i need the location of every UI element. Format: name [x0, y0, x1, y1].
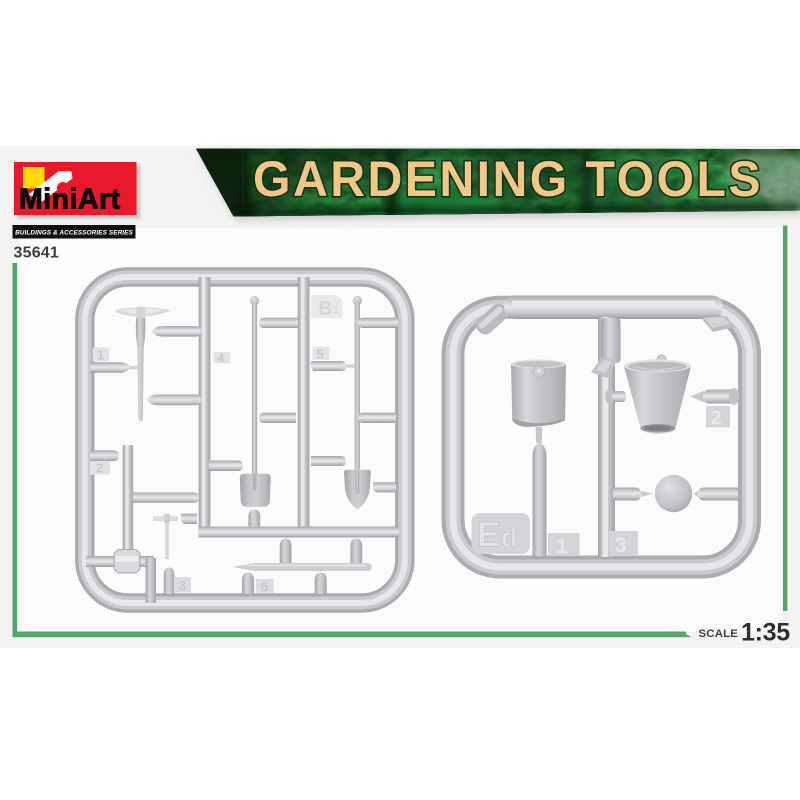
svg-text:1: 1 — [556, 535, 568, 558]
svg-text:BUILDINGS & ACCESSORIES SERIES: BUILDINGS & ACCESSORIES SERIES — [15, 230, 133, 237]
svg-text:d: d — [501, 523, 518, 553]
svg-text:4: 4 — [218, 351, 225, 365]
svg-text:3: 3 — [615, 534, 627, 557]
svg-text:5: 5 — [317, 346, 324, 361]
svg-text:E: E — [477, 516, 500, 555]
svg-text:B: B — [319, 299, 333, 320]
svg-text:SCALE: SCALE — [699, 628, 739, 640]
svg-text:1:35: 1:35 — [741, 619, 790, 647]
svg-text:2: 2 — [711, 408, 722, 429]
svg-text:1: 1 — [333, 304, 339, 316]
svg-text:GARDENING TOOLS: GARDENING TOOLS — [253, 151, 763, 207]
svg-text:2: 2 — [96, 461, 103, 476]
svg-text:MiniArt: MiniArt — [19, 184, 121, 216]
svg-text:6: 6 — [261, 580, 269, 595]
svg-text:1: 1 — [97, 348, 104, 363]
svg-text:35641: 35641 — [14, 244, 60, 261]
svg-text:3: 3 — [179, 578, 187, 594]
